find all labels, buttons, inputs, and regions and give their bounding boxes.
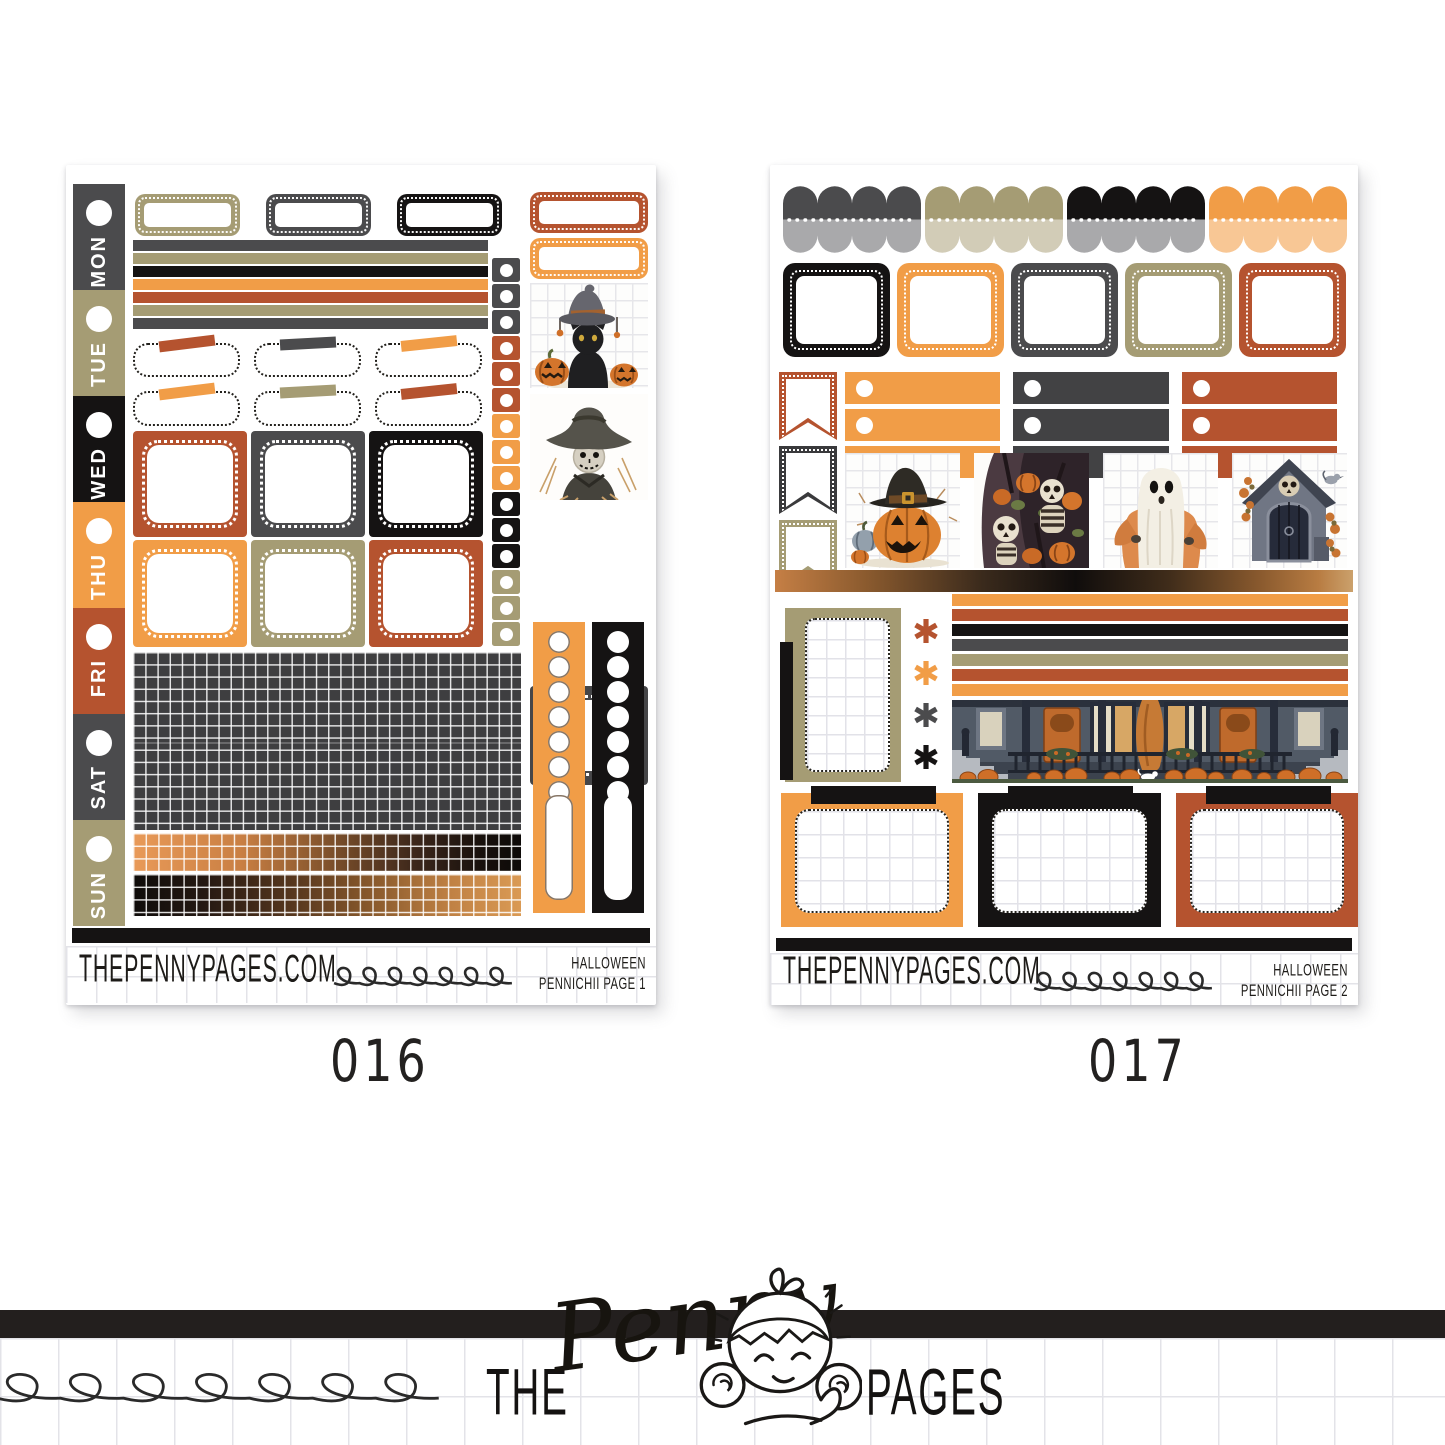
writing-slot — [604, 795, 632, 900]
punch-dot — [86, 730, 112, 756]
tab-box-sticker — [781, 793, 963, 927]
full-box-row-1 — [133, 431, 483, 537]
gradient-graph-strip — [133, 874, 521, 916]
punch-dot — [86, 412, 112, 438]
notebook-sticker — [785, 608, 901, 782]
footer-page: PENNICHII PAGE 1 — [539, 974, 646, 994]
scallop-row — [783, 186, 1361, 253]
checkbox-column — [492, 258, 520, 646]
washi-strip-stack — [133, 240, 488, 331]
washi-strip — [133, 266, 488, 277]
checklist-strip — [1013, 372, 1168, 404]
footer-collection-label: HALLOWEEN PENNICHII PAGE 1 — [539, 954, 646, 995]
tape-accent — [400, 383, 457, 400]
footer-site-text: THEPENNYPAGES.COM — [79, 946, 337, 993]
washi-strip — [133, 279, 488, 290]
pill-row-2 — [133, 391, 482, 426]
black-cat-witch-hat-image — [530, 283, 648, 388]
writing-area — [992, 809, 1146, 913]
crypt-skull-image — [1232, 453, 1347, 568]
tab-accent — [1206, 786, 1331, 804]
label-box-sticker — [397, 194, 502, 236]
sticker-sheet-017: ✱✱✱✱✱ — [770, 165, 1358, 1005]
washi-strip — [952, 684, 1348, 696]
skeletons-pumpkins-icon — [974, 453, 1089, 568]
half-box-sticker — [1239, 263, 1346, 357]
checkbox-sticker — [492, 336, 520, 360]
asterisk-sticker: ✱ — [906, 741, 946, 774]
ghost-image — [1103, 453, 1218, 568]
pumpkin-witch-hat-image — [845, 453, 960, 568]
tape-accent — [158, 335, 215, 353]
writing-slot — [545, 795, 573, 900]
footer-divider-bar — [72, 928, 650, 943]
product-mockup-page: { "palette": { "dark_gray": "#4b4b4d", "… — [0, 0, 1445, 1445]
label-box-sticker — [135, 194, 240, 236]
quarter-box-row — [135, 194, 502, 236]
full-box-sticker — [251, 431, 365, 537]
full-box-sticker — [369, 431, 483, 537]
black-cat-witch-hat-icon — [530, 283, 648, 388]
tall-checklist-columns — [533, 622, 644, 913]
footer-theme: HALLOWEEN — [1241, 961, 1348, 981]
halloween-porch-icon — [952, 700, 1348, 783]
sticker-sheet-016: MON TUE WED THU FRI SAT SUN — [66, 165, 656, 1005]
weekday-tab: MON — [73, 184, 125, 290]
dotted-label-sticker — [133, 343, 240, 377]
weekday-label: SUN — [88, 871, 111, 919]
asterisk-icon: ✱ — [912, 696, 940, 735]
dotted-label-sticker — [254, 391, 361, 426]
checkbox-sticker — [492, 544, 520, 568]
squiggle-doodle — [1032, 965, 1214, 997]
flag-column — [779, 372, 837, 588]
writing-area — [1190, 809, 1344, 913]
checklist-column-sticker — [592, 622, 644, 913]
weekday-label: TUE — [88, 341, 111, 387]
punch-dot — [86, 306, 112, 332]
tab-box-row — [781, 793, 1358, 927]
checkbox-sticker — [492, 518, 520, 542]
asterisk-column: ✱✱✱✱✱ — [906, 615, 946, 811]
asterisk-sticker: ✱ — [906, 657, 946, 690]
checkbox-sticker — [492, 596, 520, 620]
full-box-sticker — [133, 540, 247, 647]
ghost-icon — [1103, 453, 1218, 568]
punch-dot — [86, 624, 112, 650]
weekday-tab: THU — [73, 502, 125, 608]
checklist-strip — [1182, 409, 1337, 441]
punch-dot — [86, 518, 112, 544]
washi-strip — [952, 639, 1348, 651]
sheet-code-017: 017 — [1088, 1027, 1188, 1095]
scarecrow-image — [530, 394, 648, 500]
scallop-border-sticker — [925, 186, 1063, 253]
weekday-label: WED — [88, 447, 111, 500]
half-box-row — [783, 263, 1346, 357]
washi-strip — [952, 624, 1348, 636]
checkbox-sticker — [492, 466, 520, 490]
side-label-boxes — [530, 192, 648, 279]
footer-collection-label: HALLOWEEN PENNICHII PAGE 2 — [1241, 961, 1348, 1002]
footer-theme: HALLOWEEN — [539, 954, 646, 974]
dotted-label-sticker — [254, 343, 361, 377]
tape-accent — [158, 383, 215, 401]
washi-strip — [952, 594, 1348, 606]
half-box-sticker — [897, 263, 1004, 357]
weekday-tab: TUE — [73, 290, 125, 396]
checkbox-sticker — [492, 570, 520, 594]
full-box-row-2 — [133, 540, 483, 647]
notebook-spine — [780, 642, 793, 780]
weekday-label: FRI — [88, 659, 111, 697]
sheet-footer: THEPENNYPAGES.COM HALLOWEEN PENNICHII PA… — [770, 953, 1358, 1005]
halloween-porch-image — [952, 700, 1348, 783]
checklist-strip — [845, 372, 1000, 404]
pennant-flag-sticker — [779, 372, 837, 440]
checkbox-sticker — [492, 440, 520, 464]
squiggle-doodle — [332, 960, 514, 992]
graph-paper-sticker — [133, 652, 521, 830]
footer-page: PENNICHII PAGE 2 — [1241, 981, 1348, 1001]
weekday-tab: WED — [73, 396, 125, 502]
checkbox-sticker — [492, 492, 520, 516]
ombre-strip — [775, 570, 1353, 592]
pumpkin-witch-hat-icon — [845, 453, 960, 568]
checklist-strip — [1182, 372, 1337, 404]
asterisk-icon: ✱ — [912, 612, 940, 651]
tab-box-sticker — [978, 793, 1160, 927]
brand-logo: THE Penny PAGES — [470, 1240, 1010, 1445]
checkbox-sticker — [492, 258, 520, 282]
weekday-label: MON — [88, 235, 111, 288]
checkbox-sticker — [492, 284, 520, 308]
weekday-strip: MON TUE WED THU FRI SAT SUN — [73, 184, 125, 926]
checkbox-sticker — [492, 388, 520, 412]
tab-accent — [811, 786, 936, 804]
sheet-footer: THEPENNYPAGES.COM HALLOWEEN PENNICHII PA… — [66, 946, 656, 1003]
footer-site-text: THEPENNYPAGES.COM — [783, 948, 1041, 995]
asterisk-sticker: ✱ — [906, 615, 946, 648]
checklist-strip — [1013, 409, 1168, 441]
scallop-border-sticker — [1209, 186, 1347, 253]
checkbox-sticker — [492, 414, 520, 438]
scallop-border-sticker — [783, 186, 921, 253]
half-box-sticker — [1011, 263, 1118, 357]
washi-strip — [133, 305, 488, 316]
weekday-tab: FRI — [73, 608, 125, 714]
washi-strip — [133, 318, 488, 329]
full-box-sticker — [251, 540, 365, 647]
checklist-strip — [845, 409, 1000, 441]
checkbox-sticker — [492, 362, 520, 386]
scarecrow-icon — [530, 394, 648, 500]
label-box-sticker — [266, 194, 371, 236]
skeletons-pumpkins-image — [974, 453, 1089, 568]
checkbox-sticker — [492, 310, 520, 334]
half-box-sticker — [783, 263, 890, 357]
tape-accent — [279, 385, 335, 399]
weekday-tab: SUN — [73, 820, 125, 926]
checkbox-sticker — [492, 622, 520, 646]
squiggle-doodle-large — [0, 1362, 444, 1412]
punch-dot — [86, 836, 112, 862]
washi-strip — [952, 654, 1348, 666]
scallop-border-sticker — [1067, 186, 1205, 253]
washi-strip-stack — [952, 594, 1348, 696]
checklist-column-sticker — [533, 622, 585, 913]
writing-area — [795, 809, 949, 913]
washi-strip — [133, 253, 488, 264]
asterisk-icon: ✱ — [912, 654, 940, 693]
asterisk-sticker: ✱ — [906, 699, 946, 732]
dotted-label-sticker — [133, 391, 240, 426]
gradient-graph-strip — [133, 833, 521, 871]
dotted-label-sticker — [375, 343, 482, 377]
full-box-sticker — [369, 540, 483, 647]
weekday-tab: SAT — [73, 714, 125, 820]
pill-row-1 — [133, 343, 482, 377]
logo-word-pages: PAGES — [866, 1356, 1005, 1431]
crypt-skull-icon — [1232, 453, 1347, 568]
washi-strip — [952, 609, 1348, 621]
half-box-sticker — [1125, 263, 1232, 357]
punch-dot — [86, 200, 112, 226]
washi-strip — [133, 292, 488, 303]
washi-strip — [952, 669, 1348, 681]
weekday-label: THU — [88, 553, 111, 600]
tape-accent — [400, 335, 457, 352]
tape-accent — [279, 337, 335, 351]
full-box-sticker — [133, 431, 247, 537]
notebook-page — [805, 618, 890, 772]
tab-accent — [1008, 786, 1133, 804]
penny-girl-doodle — [698, 1246, 862, 1442]
asterisk-icon: ✱ — [912, 738, 940, 777]
washi-strip — [133, 240, 488, 251]
tab-box-sticker — [1176, 793, 1358, 927]
dotted-label-sticker — [375, 391, 482, 426]
pennant-flag-sticker — [779, 446, 837, 514]
sheet-code-016: 016 — [330, 1027, 430, 1095]
label-box-sticker — [530, 238, 648, 279]
label-box-sticker — [530, 192, 648, 233]
weekday-label: SAT — [88, 765, 111, 810]
